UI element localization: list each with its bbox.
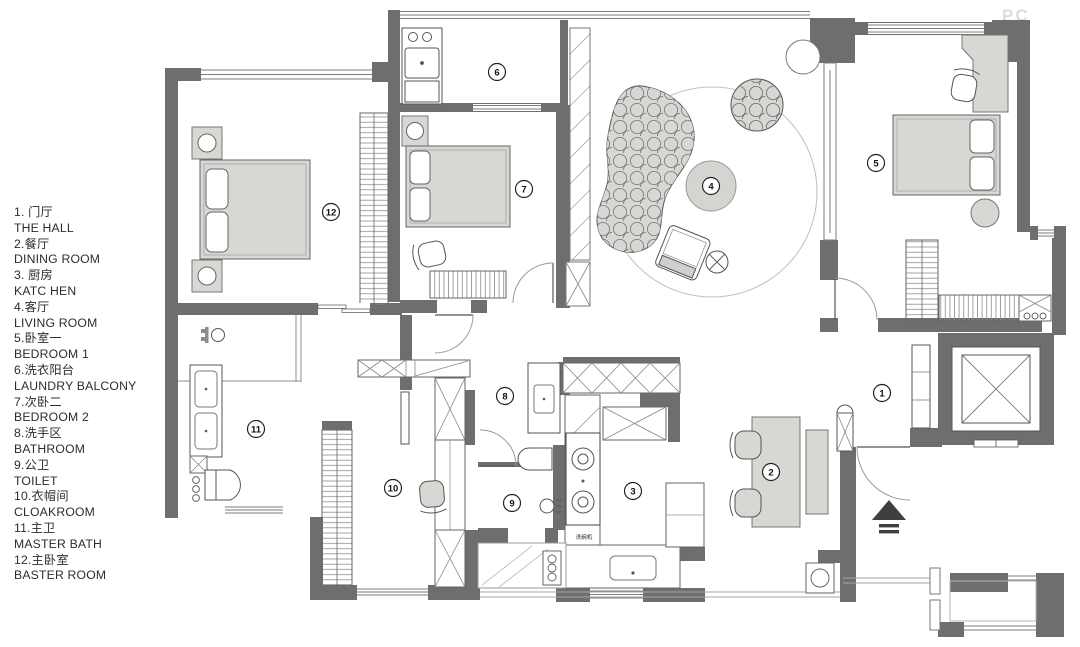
room-marker-toilet: 9 xyxy=(504,495,521,512)
svg-text:2: 2 xyxy=(768,468,773,479)
svg-text:9: 9 xyxy=(509,499,514,510)
room-marker-bedroom2: 7 xyxy=(516,181,533,198)
pillow xyxy=(970,120,994,153)
corridor-cabinet-row xyxy=(358,360,470,377)
window-bedroom1-top xyxy=(868,23,984,34)
room-marker-dining: 2 xyxy=(763,464,780,481)
stove xyxy=(566,433,600,525)
svg-text:3: 3 xyxy=(630,487,635,498)
table-lamp xyxy=(407,123,424,140)
floor-plan-page: 1. 门厅 THE HALL 2.餐厅 DINING ROOM 3. 厨房 KA… xyxy=(0,0,1080,647)
corner-cabinet xyxy=(603,407,666,440)
master-bath-fixtures xyxy=(178,315,409,501)
pebble-pouf xyxy=(731,79,783,131)
sliding-door xyxy=(318,303,370,315)
entry-door xyxy=(857,447,910,500)
shoe-cabinet-column xyxy=(837,405,853,451)
hall-cabinet xyxy=(912,345,930,428)
wardrobe xyxy=(906,240,1019,321)
window-kitchen-bottom xyxy=(590,589,643,600)
table-lamp xyxy=(198,267,216,285)
floor-plan: 洗碗机 xyxy=(0,0,1080,647)
shelf-column xyxy=(566,28,590,306)
wall-hung-toilet xyxy=(518,448,552,470)
svg-text:5: 5 xyxy=(873,159,879,170)
room-marker-master-bath: 11 xyxy=(248,421,265,438)
room-marker-kitchen: 3 xyxy=(625,483,642,500)
room-marker-hall: 1 xyxy=(874,385,891,402)
window-bedroom1-right xyxy=(1038,228,1054,238)
window-top-band xyxy=(400,10,810,20)
dishwasher-label: 洗碗机 xyxy=(576,533,593,541)
wardrobe xyxy=(322,430,352,585)
window-master-bath-bottom xyxy=(225,505,283,515)
water-heater xyxy=(543,551,561,585)
sideboard xyxy=(806,430,828,514)
svg-text:1: 1 xyxy=(879,389,885,400)
window-laundry-divider xyxy=(473,104,541,111)
room-marker-bedroom1: 5 xyxy=(868,155,885,172)
master-bedroom-furniture xyxy=(192,113,388,315)
laundry-appliances xyxy=(402,28,442,104)
wardrobe xyxy=(360,113,388,305)
shoe-cabinet xyxy=(1019,295,1051,321)
dining-chair xyxy=(730,431,761,459)
toilet xyxy=(205,470,240,500)
armchair xyxy=(654,224,711,281)
svg-text:11: 11 xyxy=(251,425,262,436)
pillow xyxy=(206,212,228,252)
washing-machine xyxy=(405,81,439,102)
shower-head-icon xyxy=(201,327,225,343)
kitchen-sink xyxy=(610,556,656,580)
door-corridor xyxy=(435,315,473,353)
door-bedroom2 xyxy=(513,263,553,312)
balcony-fixtures xyxy=(478,543,566,588)
bench-stripes xyxy=(430,271,506,298)
pillow xyxy=(410,188,430,221)
door-leaf xyxy=(401,392,409,444)
pillow xyxy=(206,169,228,209)
chair xyxy=(411,239,448,271)
svg-text:4: 4 xyxy=(708,182,714,193)
svg-text:7: 7 xyxy=(521,185,526,196)
room-marker-living: 4 xyxy=(703,178,720,195)
floor-drain-box xyxy=(806,563,834,593)
entry-arrow xyxy=(872,500,906,533)
glass-living-right xyxy=(824,63,836,240)
side-table xyxy=(786,40,820,74)
door-bedroom1 xyxy=(835,278,878,331)
walls xyxy=(165,10,1066,637)
pillow xyxy=(970,157,994,190)
room-marker-master-bedroom: 12 xyxy=(323,204,340,221)
cloakroom-furniture xyxy=(322,430,447,585)
window-master-bedroom-top xyxy=(201,68,372,81)
window-cloakroom-bottom xyxy=(357,587,428,597)
svg-text:12: 12 xyxy=(326,208,337,219)
svg-text:8: 8 xyxy=(502,392,507,403)
pillow xyxy=(410,151,430,184)
floor-lamp-icon xyxy=(706,251,728,273)
room-marker-wash-area: 8 xyxy=(497,388,514,405)
pouf xyxy=(971,199,999,227)
dining-chair xyxy=(730,489,761,517)
svg-text:6: 6 xyxy=(494,68,499,79)
upper-cabinets xyxy=(563,363,680,393)
table-lamp xyxy=(198,134,216,152)
living-room-furniture xyxy=(597,40,820,297)
room-marker-cloakroom: 10 xyxy=(385,480,402,497)
toilet-fixtures xyxy=(480,430,562,513)
room-marker-laundry-balcony: 6 xyxy=(489,64,506,81)
door-toilet xyxy=(480,430,516,466)
svg-text:10: 10 xyxy=(388,484,399,495)
